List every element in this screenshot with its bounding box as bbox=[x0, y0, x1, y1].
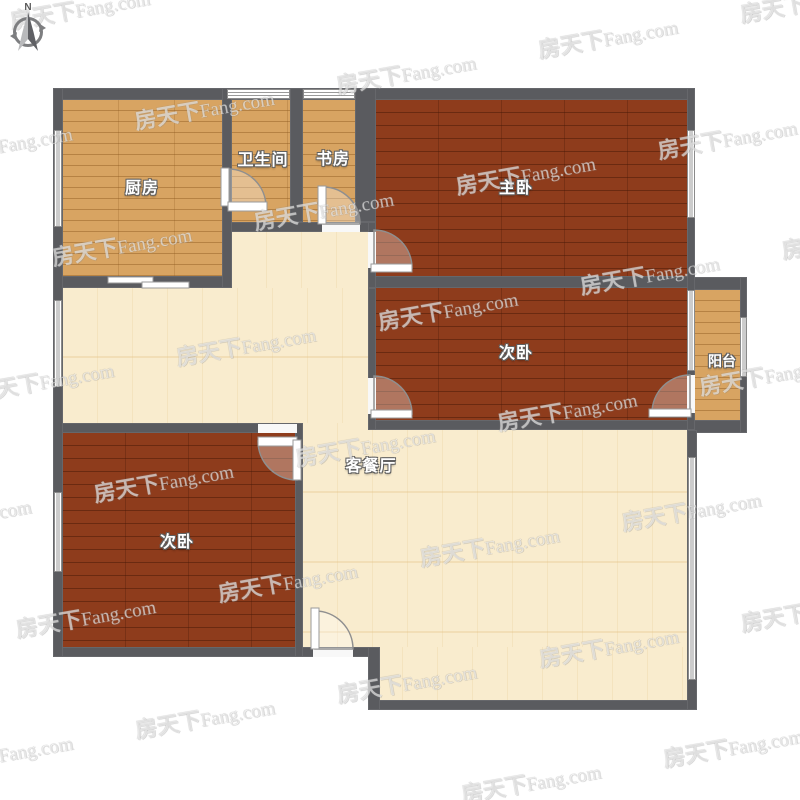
watermark-text-latin: Fang.com bbox=[763, 355, 800, 389]
watermark-text: 房天下Fang.com bbox=[0, 725, 76, 781]
watermark-text-latin: Fang.com bbox=[525, 762, 603, 796]
watermark-text-latin: Fang.com bbox=[602, 18, 680, 52]
watermark-text: 房天下Fang.com bbox=[661, 718, 800, 774]
watermark-text: 房天下Fang.com bbox=[459, 753, 604, 800]
wall-segment bbox=[295, 423, 303, 657]
window bbox=[687, 130, 695, 218]
wall-segment bbox=[290, 88, 303, 222]
window bbox=[740, 317, 747, 377]
bedroom-bottom-label: 次卧 bbox=[160, 528, 194, 552]
balcony-door-opening bbox=[687, 375, 695, 413]
compass-icon: N bbox=[4, 0, 52, 60]
entry-door-opening bbox=[313, 648, 353, 657]
watermark-text-latin: Fang.com bbox=[0, 497, 34, 531]
bedroom-middle-label: 次卧 bbox=[499, 339, 533, 363]
watermark-text: 房天下Fang.com bbox=[737, 0, 800, 29]
watermark-text-latin: Fang.com bbox=[727, 727, 800, 761]
watermark-text: 房天下Fang.com bbox=[779, 209, 800, 265]
wall-segment bbox=[687, 277, 747, 290]
study-door-opening bbox=[322, 223, 360, 232]
window bbox=[303, 89, 355, 99]
watermark-text: 房天下Fang.com bbox=[738, 582, 800, 638]
window bbox=[687, 290, 695, 371]
balcony-label: 阳台 bbox=[708, 351, 736, 371]
master-door-opening bbox=[368, 232, 376, 268]
watermark-text: 房天下Fang.com bbox=[133, 689, 278, 745]
living-floor-lower bbox=[368, 647, 687, 700]
wall-segment bbox=[368, 700, 697, 710]
bedroom-middle-door-opening bbox=[368, 378, 376, 414]
bathroom-label: 卫生间 bbox=[237, 146, 288, 170]
wall-segment bbox=[368, 647, 380, 710]
hallway-floor bbox=[232, 232, 368, 288]
living-dining-label: 客餐厅 bbox=[345, 452, 396, 476]
watermark-text-latin: Fang.com bbox=[199, 698, 277, 732]
compass-north-label: N bbox=[24, 2, 31, 13]
window bbox=[54, 130, 62, 227]
bedroom-bottom-door-opening bbox=[258, 424, 297, 433]
watermark-text: 房天下Fang.com bbox=[536, 9, 681, 65]
wall-segment bbox=[53, 276, 232, 288]
wall-segment bbox=[368, 420, 695, 430]
watermark-text-latin: Fang.com bbox=[685, 490, 763, 524]
study-label: 书房 bbox=[316, 145, 350, 169]
master-bedroom-label: 主卧 bbox=[499, 174, 533, 198]
wall-segment bbox=[368, 276, 695, 288]
watermark-text: 房天下Fang.com bbox=[257, 789, 402, 800]
watermark-text: 房天下Fang.com bbox=[0, 488, 34, 544]
watermark-text-latin: Fang.com bbox=[74, 0, 152, 23]
window bbox=[54, 300, 62, 387]
living-floor-upper bbox=[63, 288, 368, 423]
kitchen-label: 厨房 bbox=[125, 174, 159, 198]
floorplan-canvas: N bbox=[0, 0, 800, 800]
window bbox=[688, 457, 696, 680]
watermark-text-latin: Fang.com bbox=[0, 733, 75, 767]
wall-segment bbox=[222, 88, 232, 288]
wall-segment bbox=[355, 88, 376, 222]
watermark-text-latin: Fang.com bbox=[400, 53, 478, 87]
window bbox=[54, 492, 62, 572]
window bbox=[227, 89, 290, 99]
watermark-text-latin: Fang.com bbox=[721, 118, 799, 152]
